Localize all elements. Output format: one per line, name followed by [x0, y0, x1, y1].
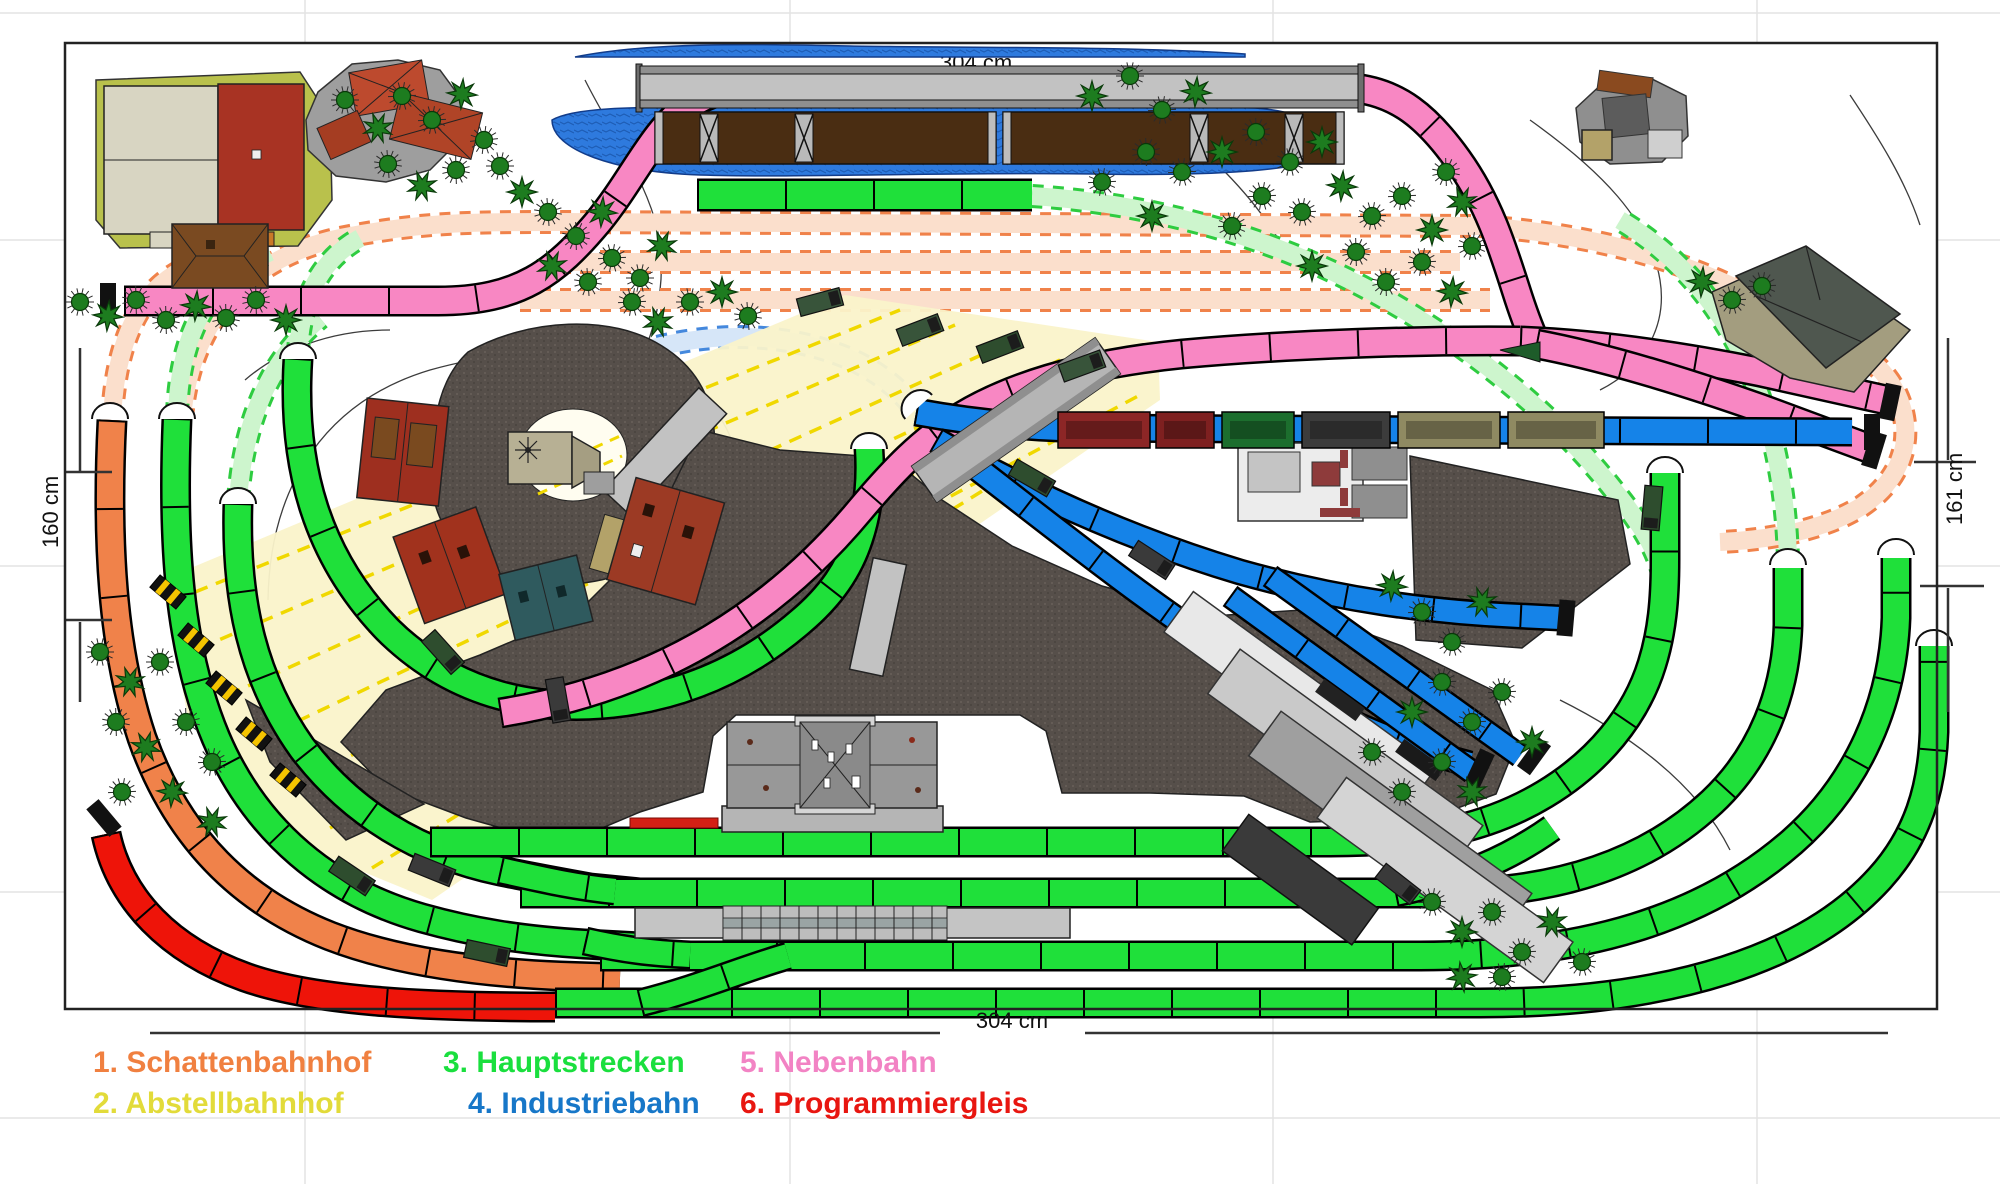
fir-tree-icon — [1447, 917, 1477, 947]
train-wagon — [1302, 412, 1390, 448]
buffer-stop — [1556, 599, 1575, 636]
farmstead — [96, 72, 332, 248]
fir-tree-icon — [1207, 137, 1237, 167]
fir-tree-icon — [1137, 201, 1167, 231]
dimension-label-bottom: 304 cm — [976, 1008, 1048, 1033]
footbridge — [636, 64, 1364, 112]
fir-tree-icon — [1297, 251, 1327, 281]
fir-tree-icon — [1417, 215, 1447, 245]
station-red-awning — [630, 818, 718, 828]
fir-tree-icon — [1077, 81, 1107, 111]
station-building — [727, 716, 937, 814]
truss-bridge-left — [655, 112, 996, 164]
train-wagon — [1398, 412, 1500, 448]
train-wagon — [1508, 412, 1604, 448]
layout-plan-canvas: 304 cm — [0, 0, 2000, 1184]
track-plan-screenshot: { "title": "Modellbahn Gleisplan", "dime… — [0, 0, 2000, 1184]
dimension-label-left: 160 cm — [38, 476, 63, 548]
fir-tree-icon — [271, 305, 301, 335]
buffer-stop — [1864, 414, 1880, 450]
train-wagon — [1222, 412, 1294, 448]
farm-house — [172, 224, 268, 288]
locomotive — [1641, 485, 1663, 530]
train-wagon — [1058, 412, 1150, 448]
platform — [635, 906, 1070, 940]
fir-tree-icon — [1307, 127, 1337, 157]
fir-tree-icon — [1397, 697, 1427, 727]
fir-tree-icon — [707, 277, 737, 307]
fir-tree-icon — [1517, 727, 1547, 757]
train-wagon — [1156, 412, 1214, 448]
fir-tree-icon — [507, 177, 537, 207]
village-house-red-1 — [357, 398, 449, 506]
dimension-label-right: 161 cm — [1942, 453, 1967, 525]
